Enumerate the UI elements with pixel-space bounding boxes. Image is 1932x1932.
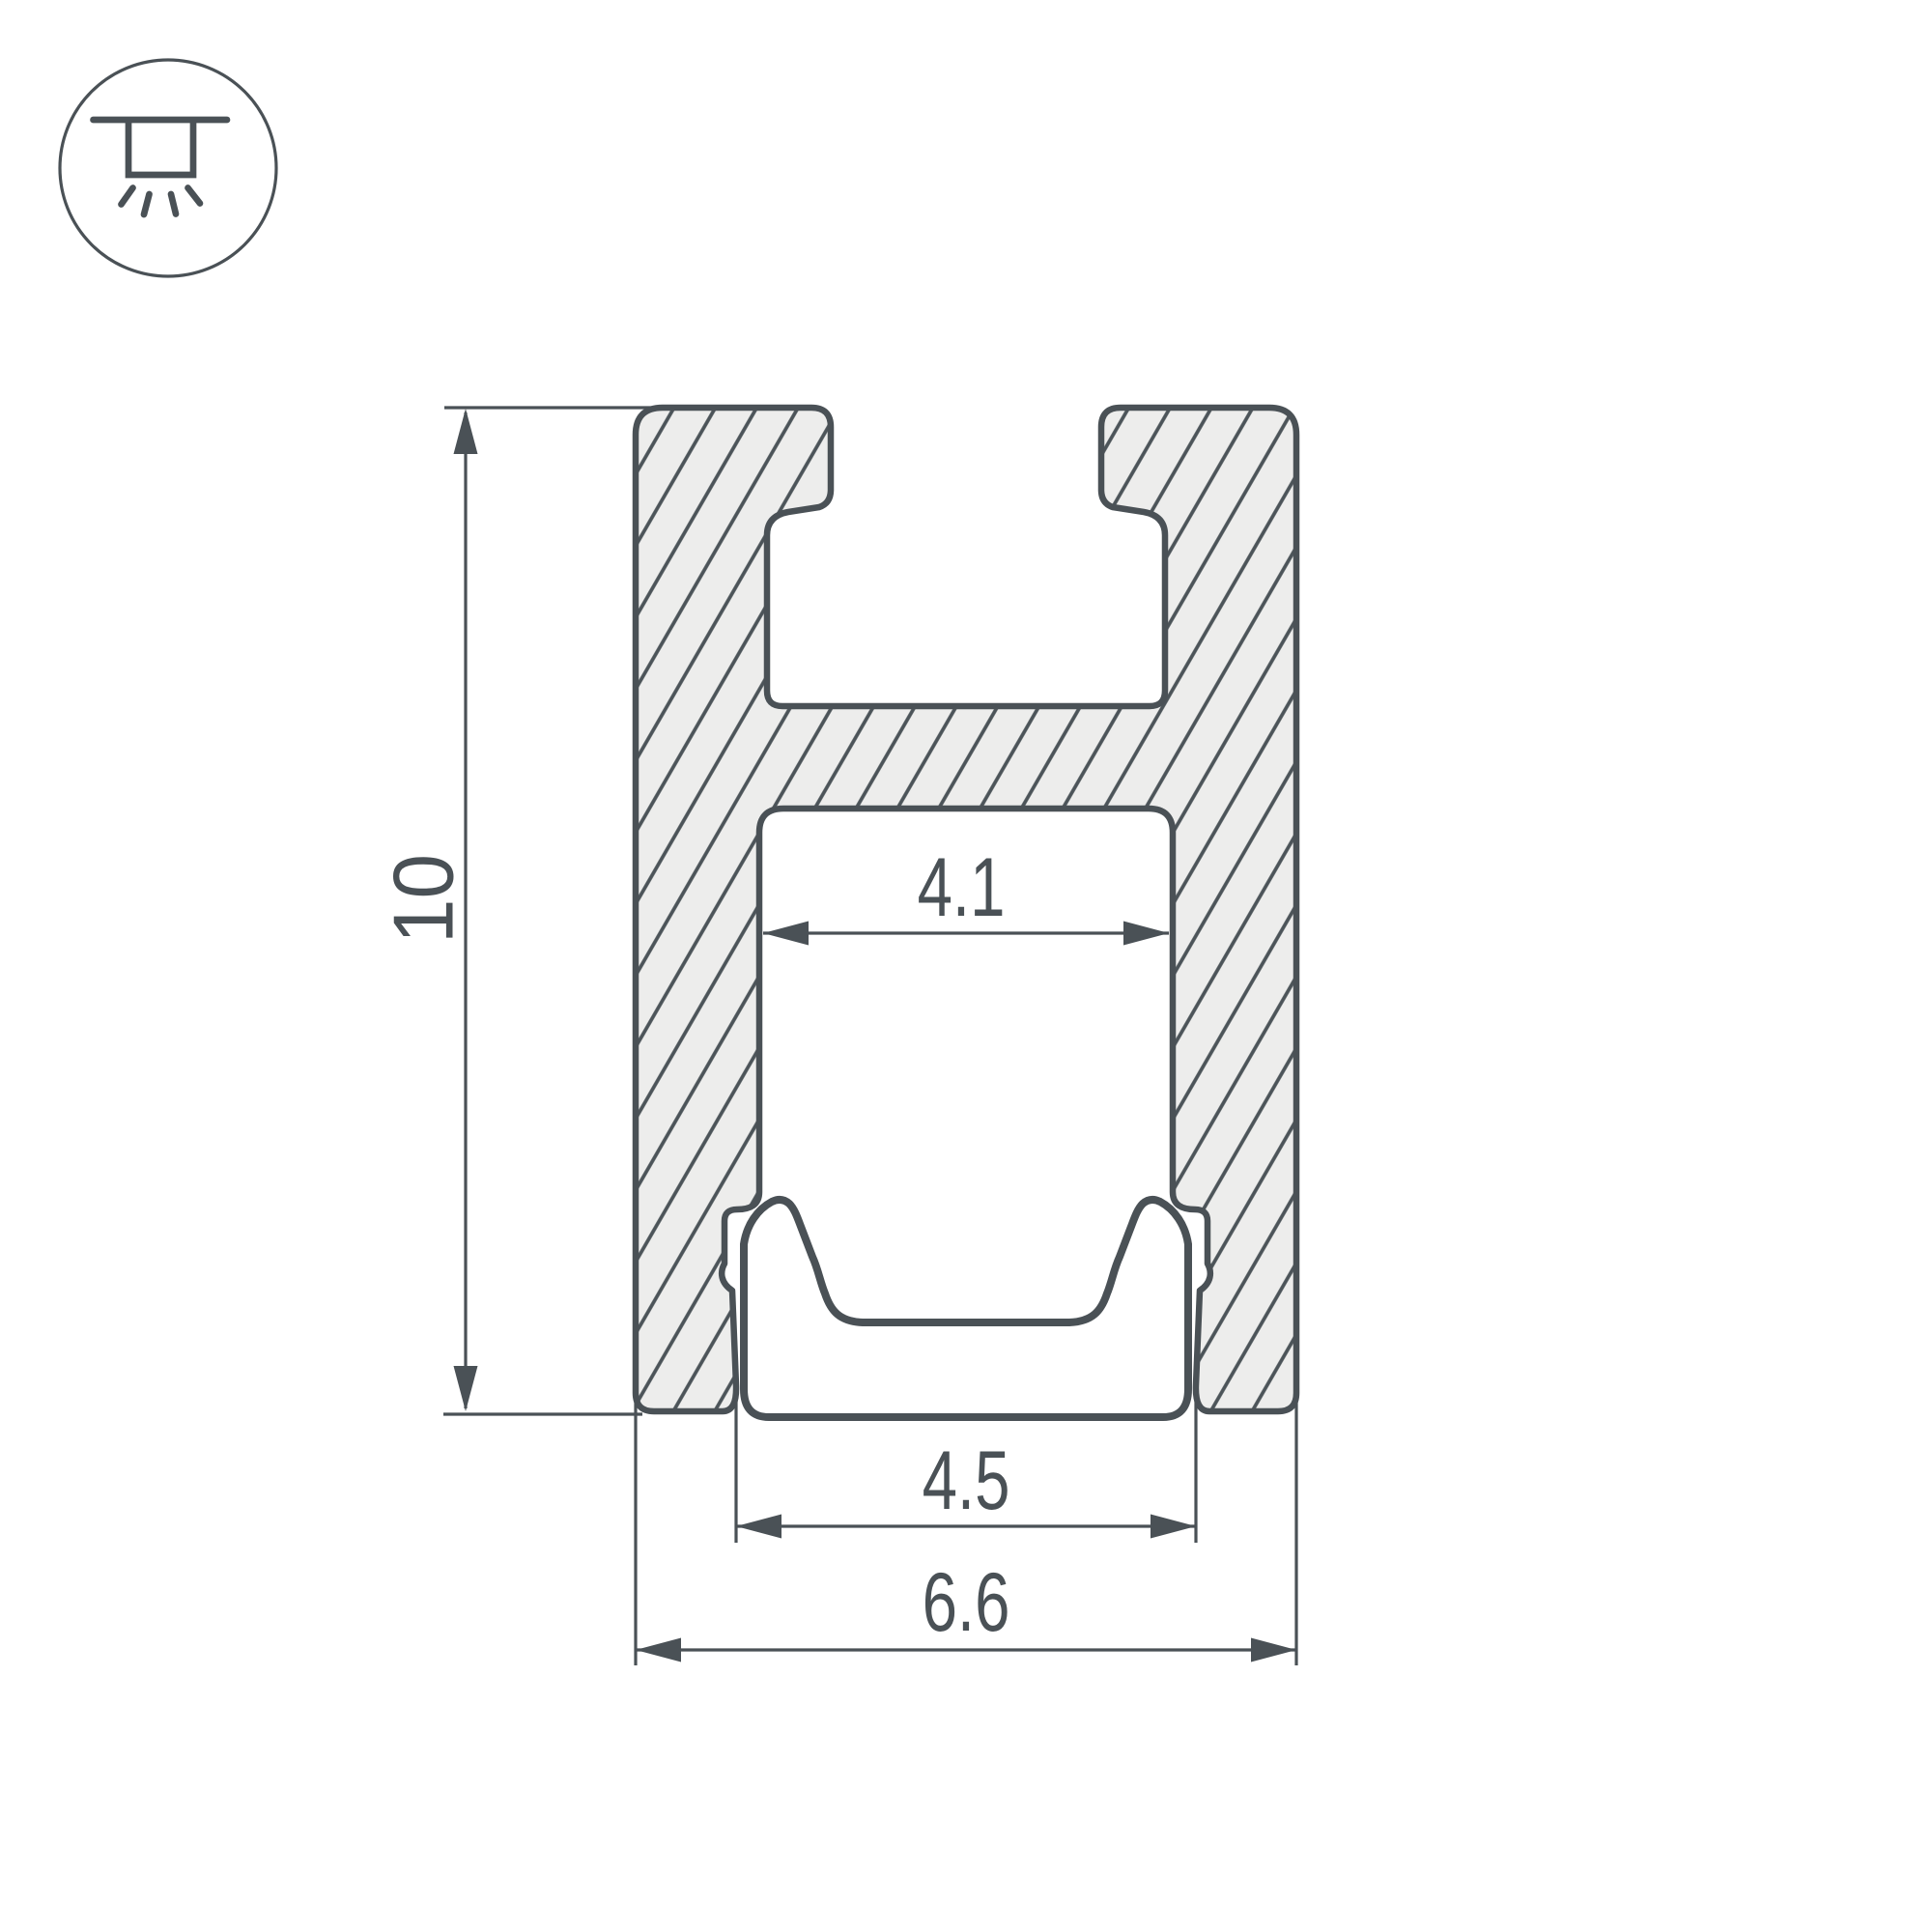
svg-text:4.5: 4.5 bbox=[923, 1435, 1010, 1527]
svg-text:10: 10 bbox=[377, 854, 471, 944]
svg-text:4.1: 4.1 bbox=[918, 841, 1006, 934]
svg-text:6.6: 6.6 bbox=[923, 1556, 1010, 1649]
